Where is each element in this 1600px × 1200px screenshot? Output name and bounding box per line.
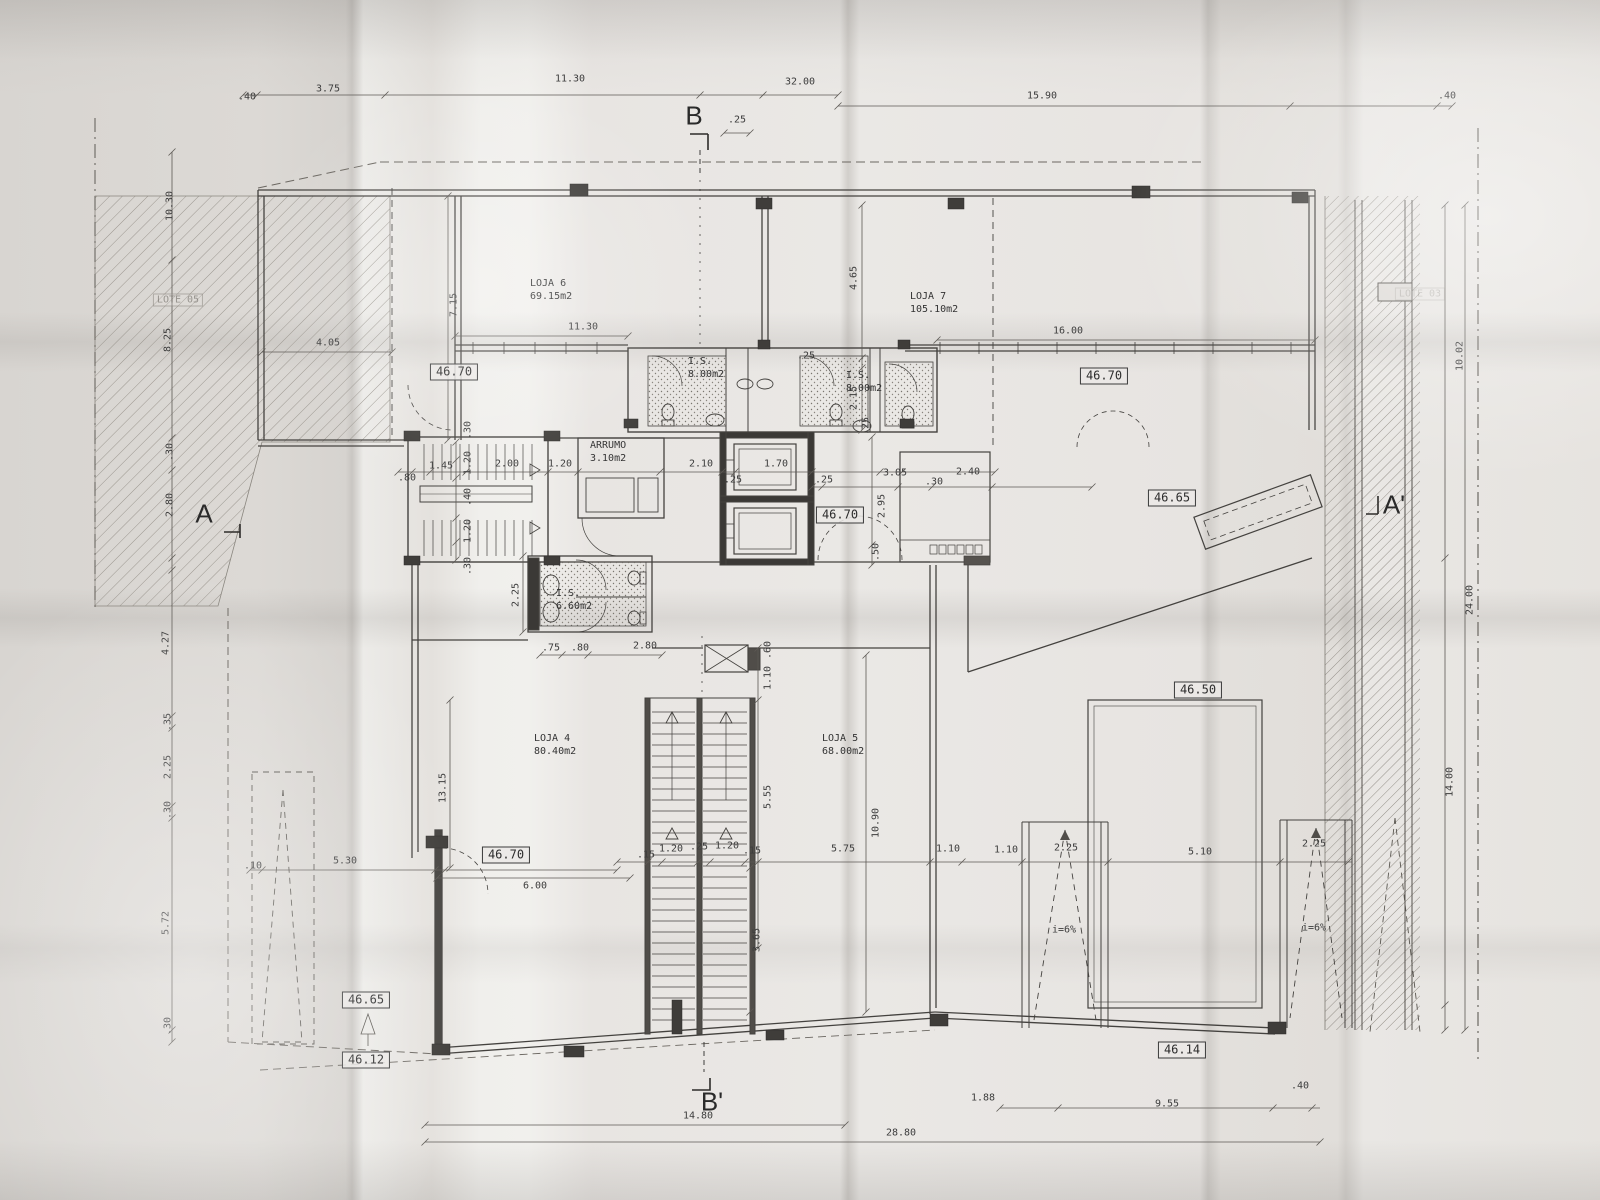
- dimension-label: 3.05: [883, 468, 907, 479]
- dimension-label: 2.25: [1054, 843, 1078, 854]
- dimension-label-vertical: .50: [871, 543, 882, 561]
- dimension-label: .75: [542, 643, 560, 654]
- dimension-label: 11.30: [568, 322, 598, 333]
- lot-label: LOTE 03: [1395, 288, 1445, 301]
- section-marker: B': [701, 1087, 723, 1118]
- elevation-marker: 46.65: [1148, 490, 1196, 507]
- dimension-label: 1.20: [548, 459, 572, 470]
- dimension-label: .40: [1438, 91, 1456, 102]
- elevation-marker: 46.50: [1174, 682, 1222, 699]
- dimension-label: 5.30: [333, 856, 357, 867]
- elevation-marker: 46.70: [1080, 368, 1128, 385]
- room-label: LOJA 5 68.00m2: [822, 732, 864, 758]
- dimension-label: 2.10: [689, 459, 713, 470]
- elevation-marker: 46.70: [430, 364, 478, 381]
- dimension-label-vertical: .30: [163, 801, 174, 819]
- dimension-label: 1.88: [971, 1093, 995, 1104]
- dimension-label-vertical: 1.20: [463, 519, 474, 543]
- elevation-marker: 46.12: [342, 1052, 390, 1069]
- dimension-label-vertical: 5.72: [161, 911, 172, 935]
- dimension-label-vertical: .40: [463, 488, 474, 506]
- dimension-label: 2.25: [1302, 839, 1326, 850]
- dimension-label-vertical: 5.55: [763, 785, 774, 809]
- section-marker: A: [195, 499, 212, 530]
- dimension-label: .10: [244, 861, 262, 872]
- elevation-marker: 46.70: [482, 847, 530, 864]
- elevation-marker: 46.65: [342, 992, 390, 1009]
- ramp-slope-label: i=6%: [1302, 923, 1326, 934]
- dimension-label: 1.45: [429, 461, 453, 472]
- dimension-label-vertical: 10.30: [165, 191, 176, 221]
- dimension-label-vertical: 2.80: [165, 493, 176, 517]
- dimension-label: .25: [815, 475, 833, 486]
- dimension-label-vertical: 13.15: [438, 773, 449, 803]
- room-label: I.S. 8.00m2: [846, 369, 882, 395]
- dimension-label: .25: [797, 351, 815, 362]
- dimension-label: 5.10: [1188, 847, 1212, 858]
- dimension-label-vertical: 10.90: [871, 808, 882, 838]
- dimension-label-vertical: .30: [463, 557, 474, 575]
- dimension-label: .30: [925, 477, 943, 488]
- dimension-label-vertical: 2.25: [163, 755, 174, 779]
- dimension-label: 1.20: [715, 841, 739, 852]
- dimension-label: 1.20: [659, 844, 683, 855]
- dimension-label-vertical: 24.00: [1465, 585, 1476, 615]
- dimension-label: 32.00: [785, 77, 815, 88]
- dimension-label-vertical: 2.25: [511, 583, 522, 607]
- dimension-label-vertical: .30: [163, 1017, 174, 1035]
- dimension-label-vertical: 1.20: [463, 451, 474, 475]
- dimension-label: 5.75: [831, 844, 855, 855]
- dimension-label: 9.55: [1155, 1099, 1179, 1110]
- dimension-label: 28.80: [886, 1128, 916, 1139]
- dimension-label-vertical: 1.10: [763, 666, 774, 690]
- elevation-marker: 46.70: [816, 507, 864, 524]
- section-marker: B: [685, 101, 702, 132]
- dimension-label: .25: [724, 475, 742, 486]
- photographed-floor-plan-sheet: .403.7511.3032.00.2515.90.404.0511.3016.…: [0, 0, 1600, 1200]
- dimension-label: 11.30: [555, 74, 585, 85]
- dimension-label-vertical: 4.27: [161, 631, 172, 655]
- room-label: LOJA 7 105.10m2: [910, 290, 958, 316]
- dimension-label: .25: [690, 842, 708, 853]
- lot-label: LOTE 05: [153, 294, 203, 307]
- dimension-label: 6.00: [523, 881, 547, 892]
- dimension-label-vertical: .30: [165, 443, 176, 461]
- dimension-label-vertical: 3.65: [752, 928, 763, 952]
- dimension-label-vertical: 7.15: [449, 293, 460, 317]
- dimension-label: 1.70: [764, 459, 788, 470]
- dimension-label: 15.90: [1027, 91, 1057, 102]
- dimension-label: .25: [728, 115, 746, 126]
- room-label: I.S. 8.00m2: [688, 355, 724, 381]
- dimension-label: 2.40: [956, 467, 980, 478]
- dimension-label-vertical: .25: [861, 417, 872, 435]
- dimension-label-vertical: .35: [163, 713, 174, 731]
- dimension-label: 1.10: [994, 845, 1018, 856]
- dimension-label: .15: [743, 846, 761, 857]
- dimension-label: 1.10: [936, 844, 960, 855]
- text-labels-layer: .403.7511.3032.00.2515.90.404.0511.3016.…: [0, 0, 1600, 1200]
- dimension-label-vertical: 10.02: [1455, 341, 1466, 371]
- dimension-label-vertical: .60: [763, 641, 774, 659]
- dimension-label: .40: [1291, 1081, 1309, 1092]
- dimension-label-vertical: 2.95: [877, 494, 888, 518]
- dimension-label: .40: [238, 92, 256, 103]
- dimension-label-vertical: 4.65: [849, 266, 860, 290]
- ramp-slope-label: i=6%: [1052, 925, 1076, 936]
- room-label: I.S. 6.60m2: [556, 587, 592, 613]
- room-label: LOJA 6 69.15m2: [530, 277, 572, 303]
- dimension-label: .80: [398, 473, 416, 484]
- dimension-label: 3.75: [316, 84, 340, 95]
- dimension-label: 4.05: [316, 338, 340, 349]
- room-label: ARRUMO 3.10m2: [590, 439, 626, 465]
- dimension-label-vertical: 14.00: [1445, 767, 1456, 797]
- dimension-label: 2.80: [633, 641, 657, 652]
- dimension-label: 16.00: [1053, 326, 1083, 337]
- dimension-label-vertical: .30: [463, 421, 474, 439]
- elevation-marker: 46.14: [1158, 1042, 1206, 1059]
- room-label: LOJA 4 80.40m2: [534, 732, 576, 758]
- dimension-label: .15: [637, 850, 655, 861]
- dimension-label: .80: [571, 643, 589, 654]
- dimension-label-vertical: 8.25: [163, 328, 174, 352]
- dimension-label: 2.00: [495, 459, 519, 470]
- section-marker: A': [1383, 490, 1405, 521]
